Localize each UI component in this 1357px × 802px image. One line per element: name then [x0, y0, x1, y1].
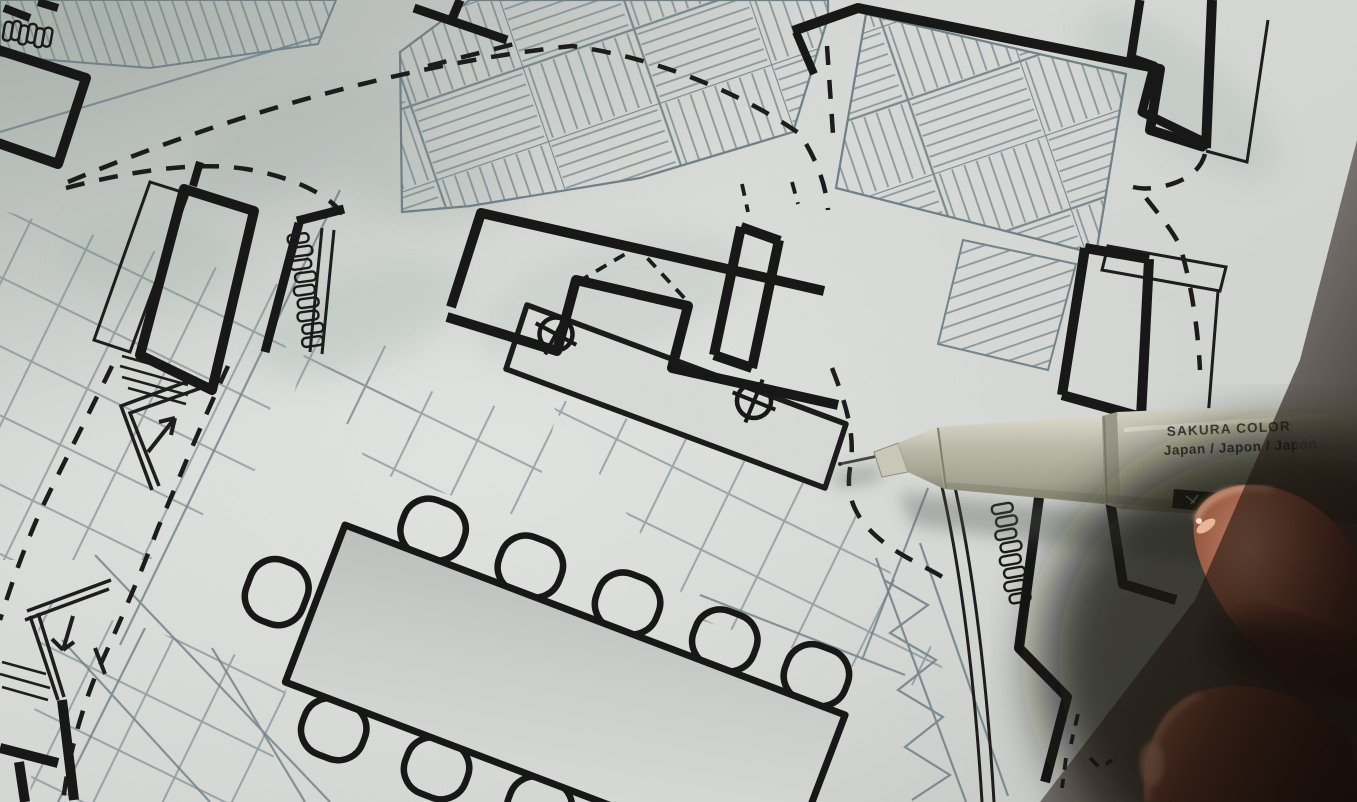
- photo-grain: [0, 0, 1357, 802]
- photo-of-floor-plan-sketch: SAKURA COLOR Japan / Japon / Japón: [0, 0, 1357, 802]
- floor-plan-photo: SAKURA COLOR Japan / Japon / Japón: [0, 0, 1357, 802]
